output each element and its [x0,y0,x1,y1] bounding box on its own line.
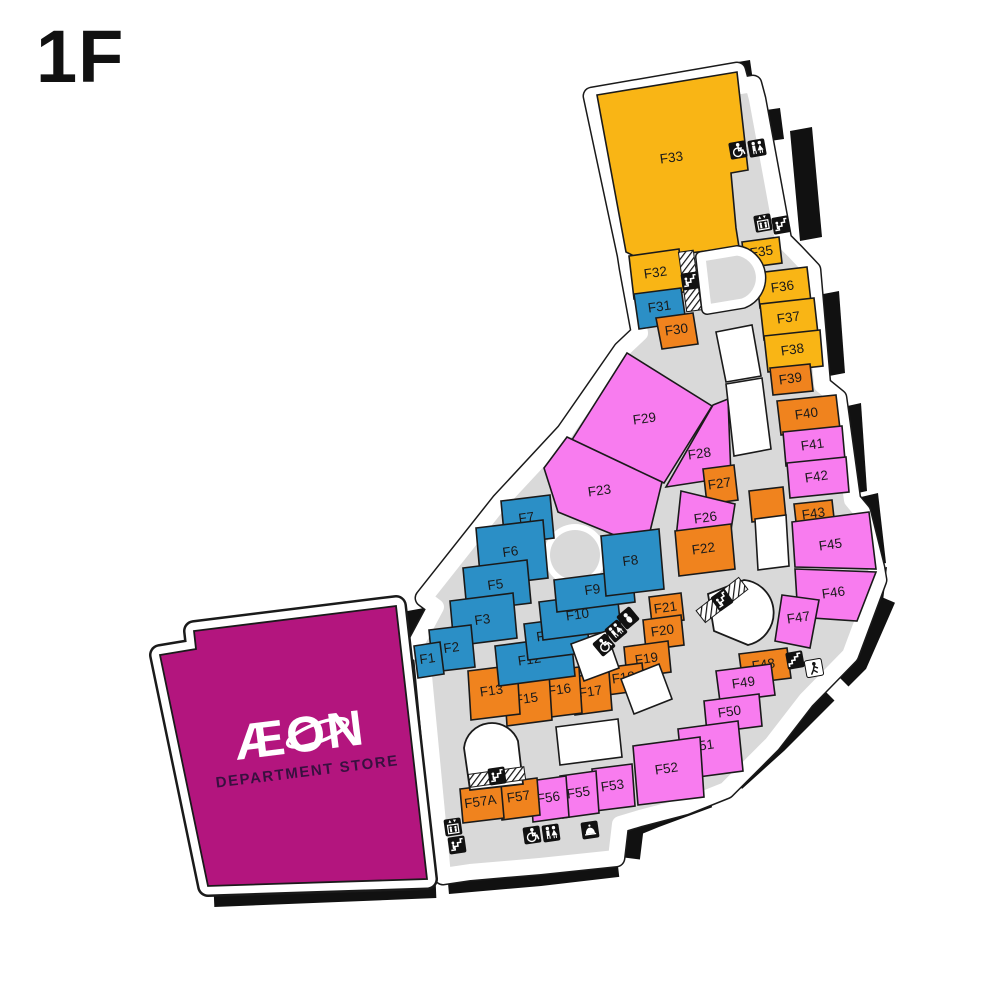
unit-label-F30: F30 [664,320,689,338]
unit-label-F55: F55 [566,783,591,801]
exit-icon [804,658,824,678]
unit-label-F36: F36 [770,277,795,295]
mall-floor-plan: F33F32F35F36F37F38F39F40F41F42F43F45F46F… [0,0,1000,1000]
unit-unlabeled [726,378,771,456]
unit-label-F52: F52 [654,759,679,777]
unit-label-F21: F21 [653,598,678,616]
unit-label-F50: F50 [717,702,742,720]
unit-label-F46: F46 [821,583,846,601]
escalator-well [701,251,760,309]
unit-label-F29: F29 [632,409,657,427]
unit-label-F49: F49 [731,673,756,691]
unit-label-F42: F42 [804,467,829,485]
unit-label-F23: F23 [587,481,612,499]
elevator-icon [753,213,773,233]
unit-label-F2: F2 [443,639,461,656]
unit-label-F39: F39 [778,369,803,387]
unit-unlabeled [556,719,622,765]
escalator-icon [447,835,466,854]
unit-label-F28: F28 [687,444,712,462]
restroom-icon [747,138,767,158]
unit-label-F38: F38 [780,340,805,358]
unit-label-F9: F9 [584,581,602,598]
unit-label-F5: F5 [487,576,505,593]
unit-label-F33: F33 [659,148,684,166]
unit-label-F26: F26 [693,508,718,526]
floor-label: 1F [36,14,124,99]
escalator-icon [487,766,506,785]
unit-label-F8: F8 [622,552,640,569]
floor-map: F33F32F35F36F37F38F39F40F41F42F43F45F46F… [0,0,1000,1000]
elevator-icon [443,817,462,836]
unit-label-F57: F57 [506,787,531,805]
wheelchair-icon [522,825,541,844]
unit-label-F3: F3 [474,611,492,628]
unit-label-F37: F37 [776,308,801,326]
unit-label-F6: F6 [502,543,520,560]
unit-label-F32: F32 [643,263,668,281]
unit-label-F40: F40 [794,404,819,422]
unit-label-F22: F22 [691,539,716,557]
unit-label-F53: F53 [600,776,625,794]
restroom-icon [541,823,560,842]
unit-label-F47: F47 [786,608,811,626]
unit-label-F31: F31 [647,297,672,315]
unit-label-F20: F20 [650,621,675,639]
unit-unlabeled [755,515,789,570]
wheelchair-icon [728,140,748,160]
bell-icon [580,820,599,839]
escalator-icon [680,271,699,290]
wall-segment [790,127,822,241]
stairs-icon [785,650,805,670]
escalator-icon [771,215,791,235]
unit-label-F41: F41 [800,435,825,453]
unit-label-F27: F27 [707,474,732,492]
unit-label-F1: F1 [419,650,437,667]
plaza [550,530,600,580]
unit-label-F45: F45 [818,535,843,553]
